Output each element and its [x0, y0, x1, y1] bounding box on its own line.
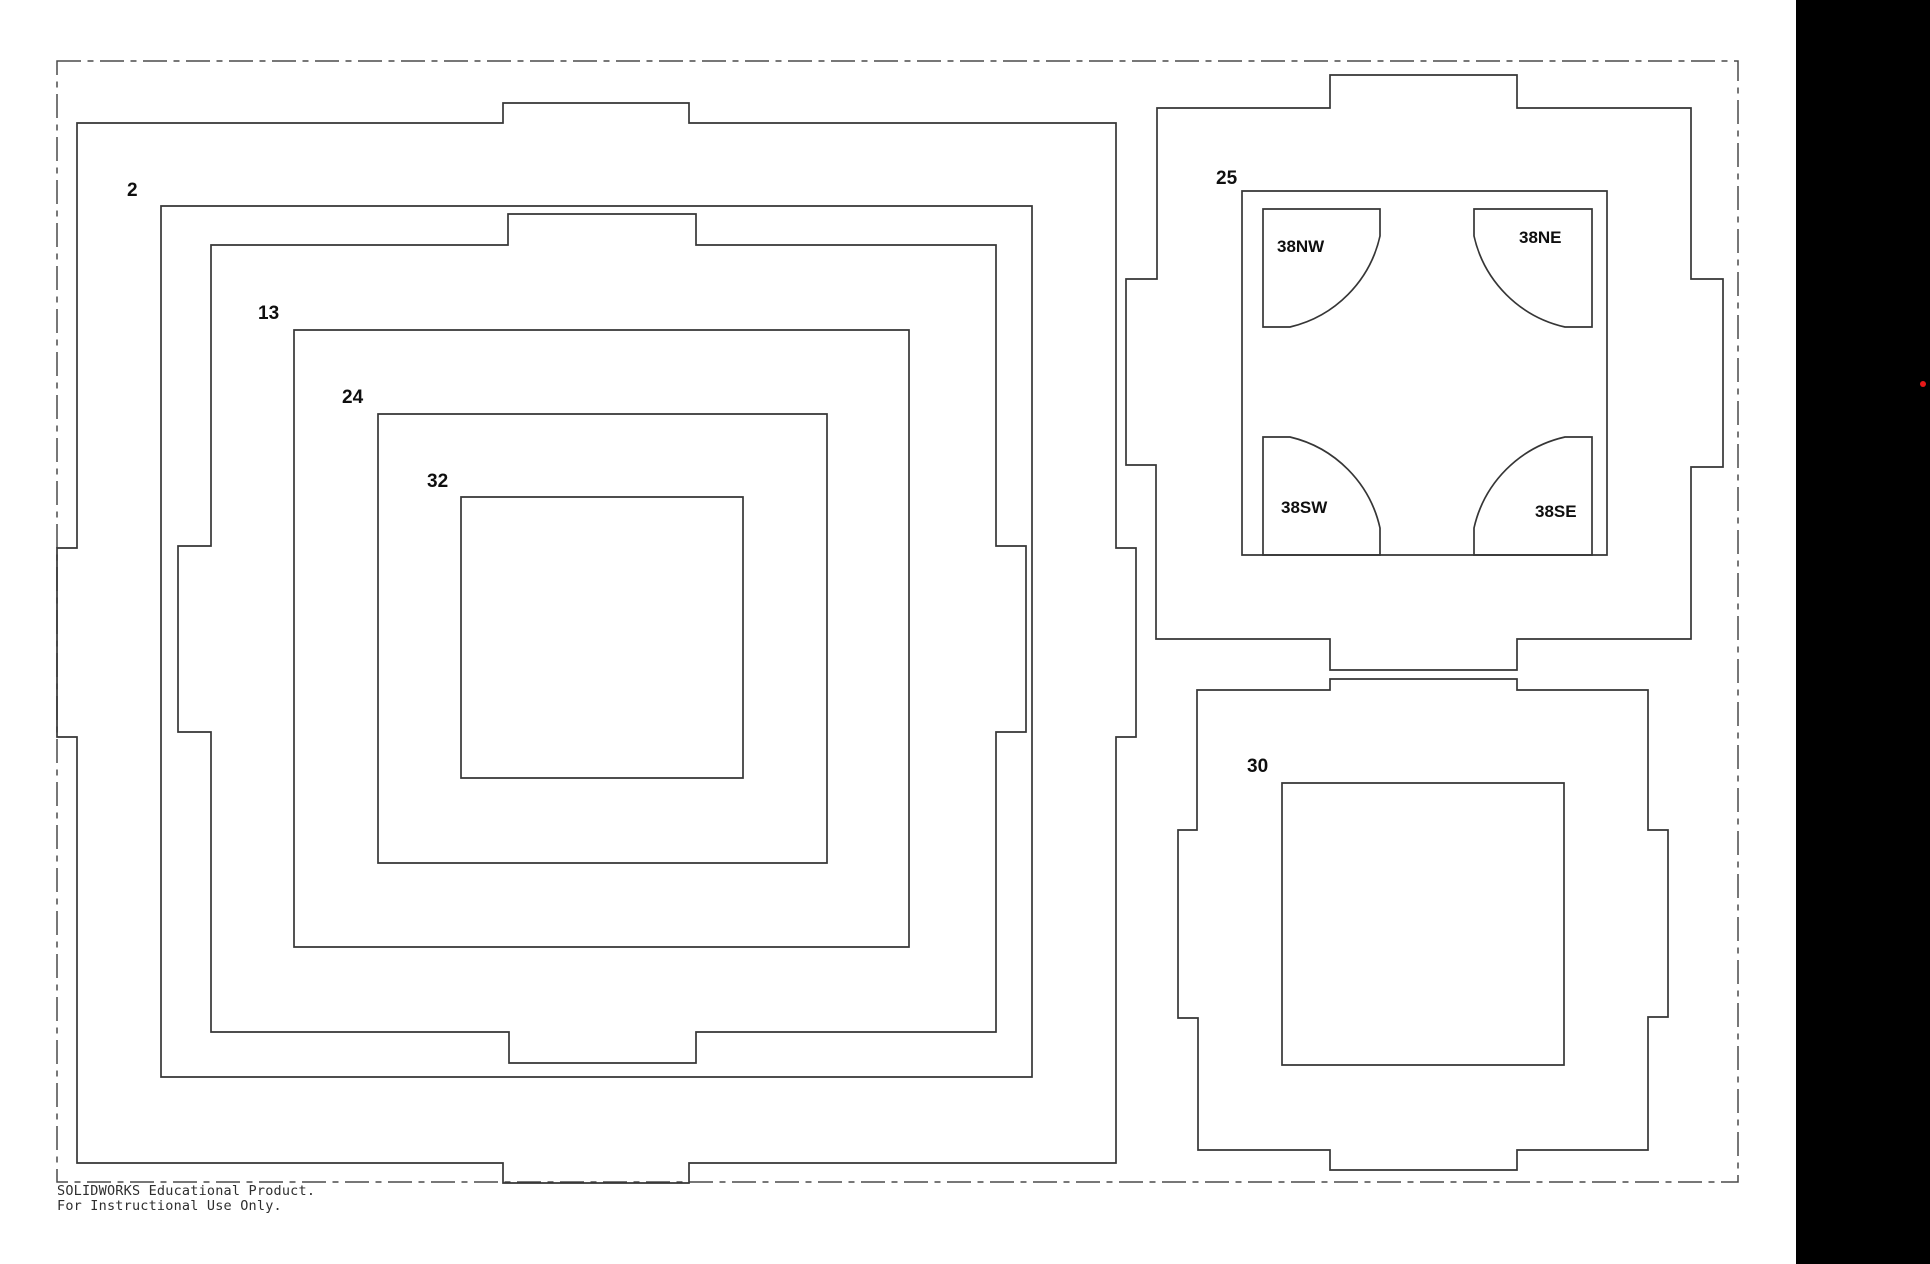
part-outline-square-f	[461, 497, 743, 778]
parts-layer: 21324322538NW38NE38SW38SE30	[57, 75, 1723, 1183]
part-outline-ring-i	[1178, 679, 1668, 1170]
part-outline-corner-38se	[1474, 437, 1592, 555]
right-black-panel	[1796, 0, 1930, 1264]
drawing-canvas: 21324322538NW38NE38SW38SE30 SOLIDWORKS E…	[0, 0, 1930, 1264]
part-outline-outer-ring-a	[57, 103, 1136, 1183]
part-label-30: 30	[1247, 756, 1268, 777]
part-label-2: 2	[127, 180, 138, 201]
part-outline-ring-g	[1126, 75, 1723, 670]
part-outline-corner-38nw	[1263, 209, 1380, 327]
part-outline-corner-38sw	[1263, 437, 1380, 555]
part-label-38SE: 38SE	[1535, 502, 1577, 521]
sheet-border-phantom	[57, 61, 1738, 1182]
red-marker-dot	[1920, 381, 1926, 387]
part-outline-ring-d	[294, 330, 909, 947]
part-label-24: 24	[342, 387, 364, 408]
part-label-25: 25	[1216, 168, 1238, 189]
solidworks-drawing-sheet: 21324322538NW38NE38SW38SE30 SOLIDWORKS E…	[0, 0, 1930, 1264]
part-label-32: 32	[427, 471, 448, 492]
part-label-13: 13	[258, 303, 279, 324]
part-outline-ring-c	[178, 214, 1026, 1063]
watermark-line2: For Instructional Use Only.	[57, 1198, 282, 1214]
part-label-38NW: 38NW	[1277, 237, 1325, 256]
part-outline-corner-38ne	[1474, 209, 1592, 327]
watermark-line1: SOLIDWORKS Educational Product.	[57, 1183, 315, 1199]
part-label-38NE: 38NE	[1519, 228, 1562, 247]
part-label-38SW: 38SW	[1281, 498, 1328, 517]
part-outline-square-j	[1282, 783, 1564, 1065]
